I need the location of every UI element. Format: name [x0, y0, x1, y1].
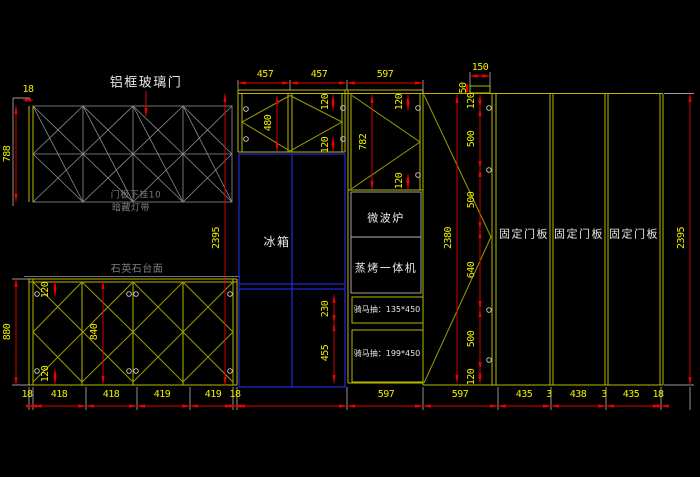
dim-chain-640: 640: [467, 262, 477, 279]
label-drawer-top: 骑马抽：135*450: [354, 306, 421, 314]
dim-bottom-418-b: 418: [103, 390, 120, 400]
dim-bottom-435-b: 435: [623, 390, 640, 400]
dim-bottom-435-a: 435: [516, 390, 533, 400]
dim-top-left-18: 18: [22, 85, 33, 95]
dim-mid-120-bottom: 120: [395, 173, 405, 190]
label-fixed-panel-1: 固定门板: [499, 229, 549, 240]
dim-base-120-top: 120: [41, 282, 51, 299]
label-fixed-panel-2: 固定门板: [554, 229, 604, 240]
label-steam-oven: 蒸烤一体机: [355, 263, 418, 274]
dim-bottom-3-a: 3: [546, 390, 552, 400]
dim-base-120-bottom: 120: [41, 366, 51, 383]
label-countertop: 石英石台面: [111, 265, 164, 275]
dim-bottom-18-right: 18: [652, 390, 663, 400]
dim-chain-120-b: 120: [467, 369, 477, 386]
dim-mid-782: 782: [359, 134, 369, 151]
label-drawer-bottom: 骑马抽：199*450: [354, 350, 421, 358]
dim-chain-500-c: 500: [467, 331, 477, 348]
dim-left-2395: 2395: [212, 227, 222, 249]
dim-mid-455: 455: [321, 345, 331, 362]
dim-top-597: 597: [377, 70, 394, 80]
label-glass-door: 铝框玻璃门: [110, 77, 183, 90]
dim-right-2395: 2395: [677, 227, 687, 249]
extension-lines: [12, 72, 694, 410]
glass-wall-cabinet: [33, 106, 232, 202]
dim-base-880: 880: [3, 324, 13, 341]
dim-chain-120-a: 120: [467, 93, 477, 110]
dim-mid-120-top: 120: [395, 94, 405, 111]
label-door-note-1: 门板下挂10: [111, 192, 161, 201]
label-fridge: 冰箱: [263, 236, 290, 248]
dim-chain-500-b: 500: [467, 192, 477, 209]
dim-bottom-18-mid: 18: [229, 390, 240, 400]
dim-bottom-438: 438: [570, 390, 587, 400]
cad-elevation-drawing: 铝框玻璃门 门板下挂10 暗藏灯带 石英石台面 冰箱 微波炉 蒸烤一体机 骑马抽…: [0, 0, 700, 477]
dim-bottom-18-left: 18: [21, 390, 32, 400]
dim-upper-480: 480: [264, 115, 274, 132]
dim-upper-120-top: 120: [321, 94, 331, 111]
dim-top-457-b: 457: [311, 70, 328, 80]
dim-bottom-419-b: 419: [205, 390, 222, 400]
dim-top-150: 150: [472, 63, 489, 73]
label-door-note-2: 暗藏灯带: [112, 205, 150, 214]
label-microwave: 微波炉: [367, 213, 405, 224]
dim-bottom-418-a: 418: [51, 390, 68, 400]
dim-bottom-597-a: 597: [378, 390, 395, 400]
dim-tall-2380: 2380: [444, 227, 454, 249]
dim-bottom-3-b: 3: [601, 390, 607, 400]
dim-upper-120-bottom: 120: [321, 137, 331, 154]
dim-chain-500-a: 500: [467, 131, 477, 148]
dim-bottom-597-b: 597: [452, 390, 469, 400]
appliance-boxes: [351, 192, 421, 293]
label-fixed-panel-3: 固定门板: [609, 229, 659, 240]
dim-left-788: 788: [3, 146, 13, 163]
dim-top-457-a: 457: [257, 70, 274, 80]
door-swing-lines: [33, 95, 491, 383]
dim-base-840: 840: [90, 324, 100, 341]
dim-bottom-419-a: 419: [154, 390, 171, 400]
dim-mid-230: 230: [321, 301, 331, 318]
